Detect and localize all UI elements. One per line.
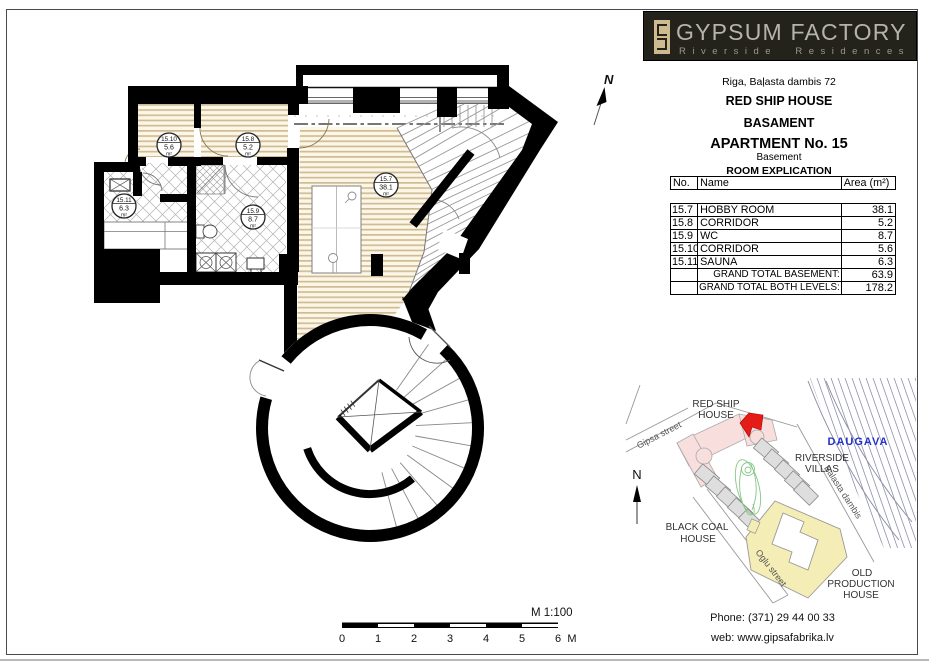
svg-text:m²: m²: [245, 152, 251, 158]
svg-text:5: 5: [519, 633, 525, 645]
svg-text:15.9: 15.9: [247, 208, 260, 215]
svg-text:4: 4: [483, 633, 489, 645]
svg-text:8.7: 8.7: [248, 217, 258, 224]
svg-text:5.6: 5.6: [164, 145, 174, 152]
svg-text:1: 1: [375, 633, 381, 645]
svg-text:0: 0: [339, 633, 345, 645]
svg-text:m²: m²: [383, 192, 389, 198]
svg-text:HOUSE: HOUSE: [680, 534, 716, 545]
svg-text:m²: m²: [166, 152, 172, 158]
svg-text:2: 2: [411, 633, 417, 645]
svg-text:OLD: OLD: [852, 568, 873, 579]
svg-text:M: M: [567, 633, 576, 645]
svg-text:Gipsa street: Gipsa street: [635, 419, 683, 450]
svg-text:BLACK COAL: BLACK COAL: [666, 522, 729, 533]
svg-text:N: N: [632, 467, 641, 482]
svg-text:PRODUCTION: PRODUCTION: [827, 579, 894, 590]
svg-text:6: 6: [555, 633, 561, 645]
svg-text:HOUSE: HOUSE: [843, 590, 879, 601]
svg-text:m²: m²: [250, 224, 256, 230]
svg-text:Balasta dambis: Balasta dambis: [822, 463, 864, 520]
svg-text:15.11: 15.11: [116, 197, 132, 204]
svg-text:RED SHIP: RED SHIP: [692, 399, 740, 410]
svg-text:M 1:100: M 1:100: [531, 607, 573, 619]
svg-text:6.3: 6.3: [119, 206, 129, 213]
svg-text:15.10: 15.10: [161, 136, 177, 143]
svg-text:HOUSE: HOUSE: [698, 410, 734, 421]
svg-text:15.8: 15.8: [242, 136, 255, 143]
svg-text:15.7: 15.7: [380, 176, 393, 183]
svg-text:RIVERSIDE: RIVERSIDE: [795, 453, 849, 464]
svg-text:DAUGAVA: DAUGAVA: [828, 436, 889, 448]
svg-text:3: 3: [447, 633, 453, 645]
svg-text:5.2: 5.2: [243, 145, 253, 152]
svg-text:38.1: 38.1: [379, 185, 393, 192]
svg-text:N: N: [604, 72, 614, 87]
svg-text:m²: m²: [121, 213, 127, 219]
